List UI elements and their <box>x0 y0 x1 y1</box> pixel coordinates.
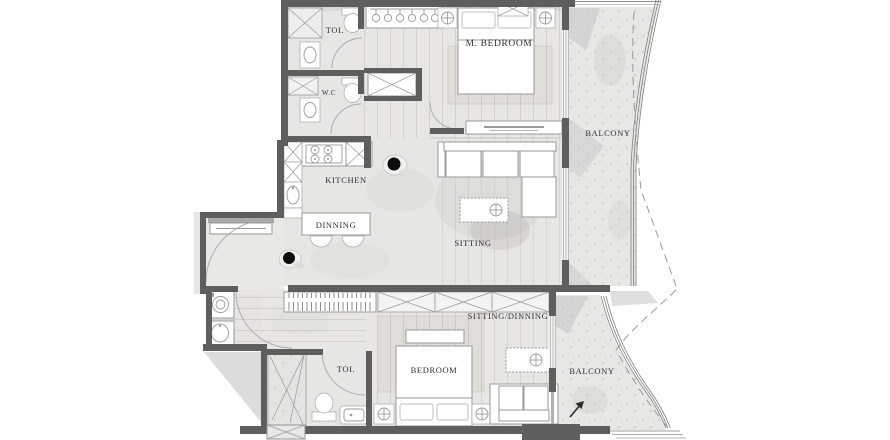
floor-plan-svg: BALCONY BALCONY TOI. <box>0 0 890 440</box>
sink <box>300 98 320 122</box>
nightstand <box>438 8 457 28</box>
balcony-bottom-label: BALCONY <box>569 366 614 376</box>
toilet-bottom-label: TOI. <box>337 364 356 374</box>
wardrobe-cabinets <box>378 292 549 312</box>
kitchen-label: KITCHEN <box>325 175 367 185</box>
tv-console <box>466 121 562 134</box>
dressing-cabinet <box>368 73 416 96</box>
bed <box>396 346 472 426</box>
coffee-table <box>506 348 552 372</box>
master-bedroom-label: M. BEDROOM <box>466 39 533 49</box>
sofa <box>490 384 558 424</box>
dinning-label: DINNING <box>316 220 357 230</box>
sliding-door <box>551 392 554 426</box>
room-bedroom: BEDROOM <box>374 316 492 426</box>
floor-plan-page: BALCONY BALCONY TOI. <box>0 0 890 440</box>
balcony-top-label: BALCONY <box>585 128 630 138</box>
sink <box>340 406 368 424</box>
wardrobe <box>366 4 442 28</box>
nightstand <box>472 404 492 424</box>
sink <box>300 42 320 68</box>
sitting-label: SITTING <box>454 238 491 248</box>
coffee-table <box>460 198 508 222</box>
sitting-dinning-label: SITTING/DINNING <box>468 311 549 321</box>
under-wall-cabinet <box>267 425 305 439</box>
nightstand <box>536 8 555 28</box>
bedroom-label: BEDROOM <box>411 365 458 375</box>
bed <box>458 8 534 94</box>
balcony-bottom: BALCONY <box>556 295 686 438</box>
wc-label: W.C <box>322 89 336 97</box>
striped-closet <box>284 292 376 312</box>
kitchen-cabinets <box>284 142 302 218</box>
tv-bench <box>406 330 464 343</box>
balcony-top: BALCONY <box>569 0 661 288</box>
toilet-top-label: TOI. <box>326 25 345 35</box>
kitchen-counter <box>302 142 346 166</box>
shower <box>268 353 306 426</box>
nightstand <box>374 404 394 424</box>
